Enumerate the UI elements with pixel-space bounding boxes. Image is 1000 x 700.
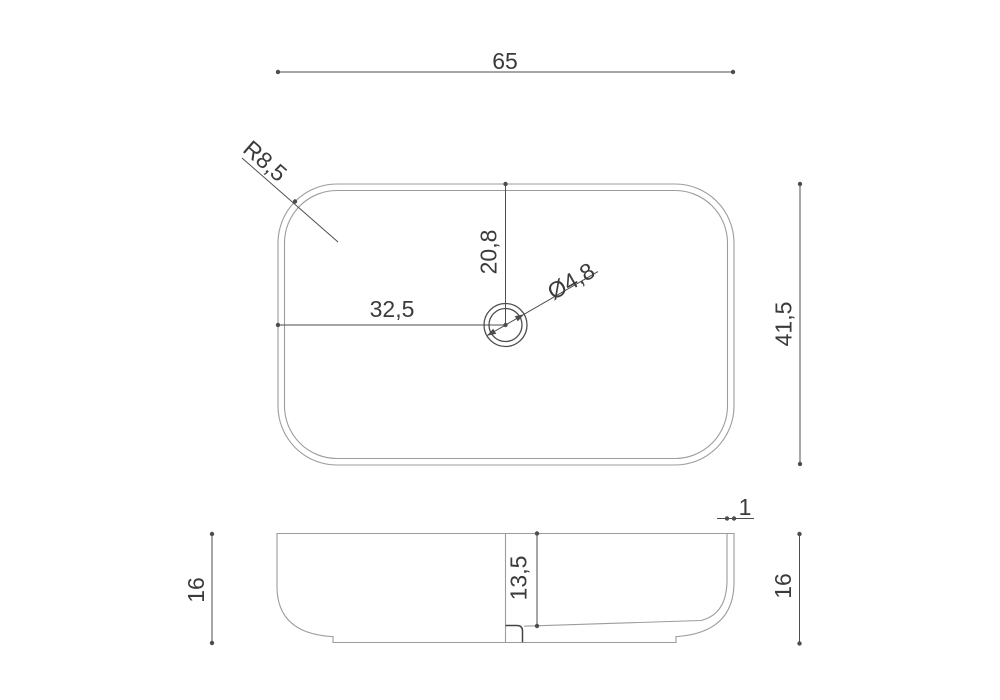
dim-inner-depth-label: 13,5 <box>506 556 532 601</box>
dim-endpoint-dot <box>731 70 735 74</box>
dim-drain-offset-left: 32,5 <box>276 296 506 327</box>
dim-wall-thickness-label: 1 <box>739 494 752 520</box>
dim-endpoint-dot <box>797 641 801 645</box>
side-view-drain-recess <box>506 626 523 643</box>
dim-drain-diameter-label: Ø4,8 <box>543 257 599 304</box>
dim-drain-offset-top: 20,8 <box>476 182 508 327</box>
dim-endpoint-dot <box>535 531 539 535</box>
dim-height-right: 16 <box>770 532 802 646</box>
dim-height-right-label: 16 <box>770 573 796 599</box>
radius-leader-line <box>242 158 338 242</box>
radius-arc-dot <box>293 199 297 203</box>
dim-endpoint-dot <box>276 70 280 74</box>
diameter-arrowhead <box>487 329 496 336</box>
dim-endpoint-dot <box>210 641 214 645</box>
dim-overall-width-label: 65 <box>492 48 518 74</box>
dim-endpoint-dot <box>503 182 507 186</box>
technical-drawing-canvas: 65 R8,5 20,8 32,5 Ø4,8 41,5 <box>0 0 1000 700</box>
dim-height-left-label: 16 <box>183 577 209 603</box>
dim-endpoint-dot <box>798 182 802 186</box>
dim-endpoint-dot <box>725 516 729 520</box>
dim-drain-offset-left-label: 32,5 <box>370 296 415 322</box>
dim-endpoint-dot <box>276 323 280 327</box>
dim-corner-radius: R8,5 <box>238 135 338 242</box>
dim-overall-depth-label: 41,5 <box>771 302 797 347</box>
diameter-arrowhead <box>515 314 524 321</box>
dim-overall-width: 65 <box>276 48 735 74</box>
dim-overall-depth: 41,5 <box>771 182 803 466</box>
dim-endpoint-dot <box>797 532 801 536</box>
dim-wall-thickness: 1 <box>717 494 754 521</box>
dim-drain-offset-top-label: 20,8 <box>476 230 502 275</box>
dim-endpoint-dot <box>535 624 539 628</box>
dim-inner-depth: 13,5 <box>506 531 540 628</box>
dim-endpoint-dot <box>732 516 736 520</box>
drawing-sheet: 65 R8,5 20,8 32,5 Ø4,8 41,5 <box>0 0 1000 700</box>
dim-endpoint-dot <box>798 462 802 466</box>
dim-endpoint-dot <box>210 532 214 536</box>
side-view-inner-profile <box>524 534 727 627</box>
dim-height-left: 16 <box>183 532 214 645</box>
